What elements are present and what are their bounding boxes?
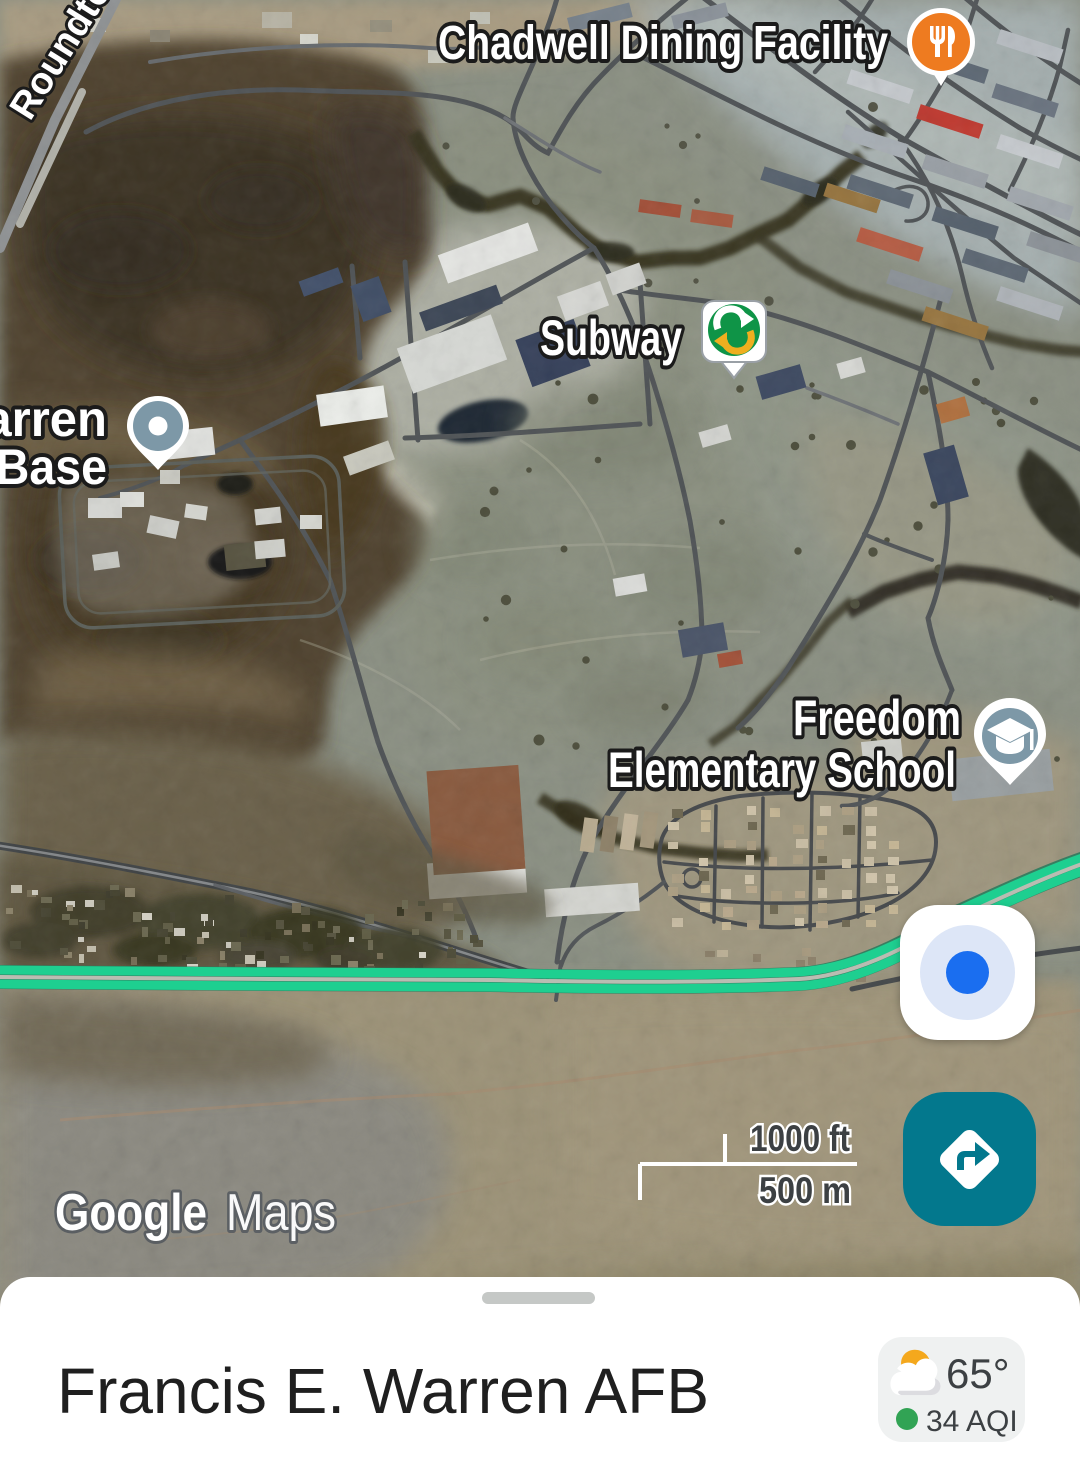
svg-text:Elementary School: Elementary School <box>608 742 956 798</box>
svg-text:Freedom: Freedom <box>793 690 961 746</box>
svg-text:Maps: Maps <box>226 1184 336 1242</box>
svg-text:500 m: 500 m <box>759 1170 851 1211</box>
svg-text:Google: Google <box>55 1184 207 1242</box>
svg-text:Chadwell Dining Facility: Chadwell Dining Facility <box>438 17 888 70</box>
svg-text:e Base: e Base <box>0 439 107 495</box>
svg-text:1000 ft: 1000 ft <box>750 1118 850 1159</box>
svg-text:Subway: Subway <box>540 310 682 366</box>
